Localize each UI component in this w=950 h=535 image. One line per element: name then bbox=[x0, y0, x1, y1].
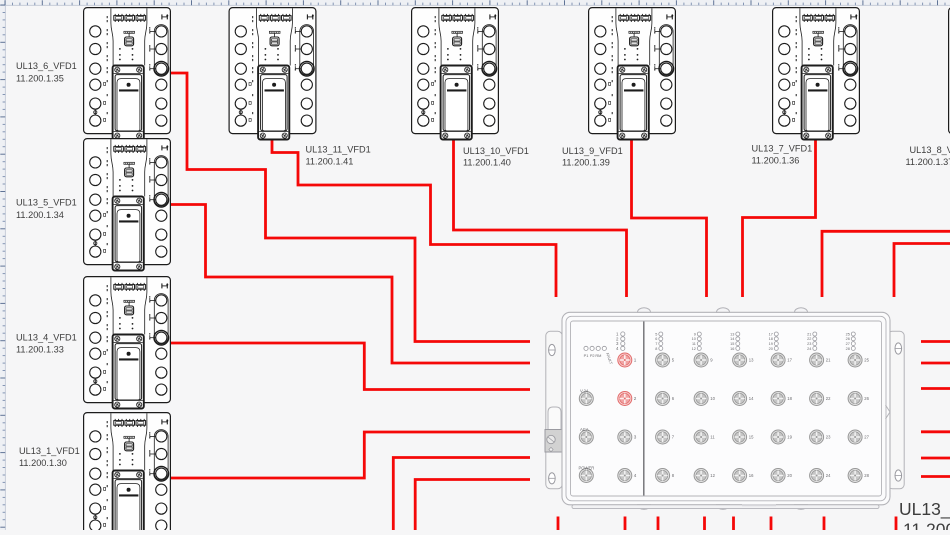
svg-text:23: 23 bbox=[826, 435, 831, 440]
svg-text:UL13_1_VFD1: UL13_1_VFD1 bbox=[19, 446, 80, 456]
svg-text:8: 8 bbox=[655, 347, 657, 351]
svg-text:22: 22 bbox=[807, 337, 811, 341]
svg-text:16: 16 bbox=[749, 473, 754, 478]
svg-text:11: 11 bbox=[692, 342, 696, 346]
svg-text:15: 15 bbox=[730, 342, 734, 346]
svg-text:22: 22 bbox=[826, 396, 831, 401]
svg-text:13: 13 bbox=[730, 332, 734, 336]
svg-text:10: 10 bbox=[710, 396, 715, 401]
svg-text:2: 2 bbox=[634, 396, 637, 401]
svg-text:RM: RM bbox=[595, 353, 601, 358]
svg-text:UL13_6_VFD1: UL13_6_VFD1 bbox=[16, 61, 77, 71]
svg-text:UL13_11_VFD1: UL13_11_VFD1 bbox=[306, 144, 371, 154]
svg-text:17: 17 bbox=[769, 332, 773, 336]
svg-text:12: 12 bbox=[710, 473, 715, 478]
svg-text:POWER: POWER bbox=[579, 466, 595, 471]
svg-text:11.200.1.30: 11.200.1.30 bbox=[19, 458, 67, 468]
svg-text:28: 28 bbox=[846, 347, 850, 351]
svg-text:24: 24 bbox=[807, 347, 811, 351]
svg-text:UL13_9_VFD1: UL13_9_VFD1 bbox=[562, 146, 623, 156]
svg-text:V.24: V.24 bbox=[580, 389, 589, 394]
svg-text:6: 6 bbox=[655, 337, 657, 341]
svg-text:21: 21 bbox=[807, 332, 811, 336]
svg-text:11.200.1.33: 11.200.1.33 bbox=[16, 345, 64, 355]
svg-text:19: 19 bbox=[787, 435, 792, 440]
svg-text:17: 17 bbox=[787, 358, 792, 363]
svg-text:UL13_5_VFD1: UL13_5_VFD1 bbox=[16, 198, 77, 208]
svg-text:9: 9 bbox=[694, 332, 696, 336]
svg-text:23: 23 bbox=[807, 342, 811, 346]
svg-text:25: 25 bbox=[864, 358, 869, 363]
svg-text:11: 11 bbox=[710, 435, 715, 440]
svg-text:11.200.1.35: 11.200.1.35 bbox=[16, 74, 64, 84]
svg-text:11.200.1.37: 11.200.1.37 bbox=[906, 157, 950, 167]
svg-text:19: 19 bbox=[769, 342, 773, 346]
svg-text:1: 1 bbox=[634, 358, 637, 363]
svg-text:20: 20 bbox=[769, 347, 773, 351]
svg-text:20: 20 bbox=[787, 473, 792, 478]
svg-text:13: 13 bbox=[749, 358, 754, 363]
svg-text:P1: P1 bbox=[584, 353, 589, 358]
svg-text:UL13_10_VFD1: UL13_10_VFD1 bbox=[463, 146, 529, 156]
svg-text:11.200.1.39: 11.200.1.39 bbox=[562, 158, 610, 168]
svg-text:14: 14 bbox=[730, 337, 734, 341]
svg-text:18: 18 bbox=[787, 396, 792, 401]
svg-text:28: 28 bbox=[864, 473, 869, 478]
svg-text:26: 26 bbox=[864, 396, 869, 401]
svg-text:14: 14 bbox=[749, 396, 754, 401]
svg-text:UL13_SW1: UL13_SW1 bbox=[899, 499, 950, 520]
svg-text:5: 5 bbox=[655, 332, 657, 336]
svg-text:3: 3 bbox=[634, 435, 637, 440]
svg-text:12: 12 bbox=[692, 347, 696, 351]
svg-text:18: 18 bbox=[769, 337, 773, 341]
svg-text:25: 25 bbox=[846, 332, 850, 336]
svg-text:P2: P2 bbox=[590, 353, 595, 358]
svg-text:27: 27 bbox=[846, 342, 850, 346]
svg-text:ACA: ACA bbox=[580, 427, 589, 432]
svg-text:21: 21 bbox=[826, 358, 831, 363]
svg-text:24: 24 bbox=[826, 473, 831, 478]
svg-text:UL13_4_VFD1: UL13_4_VFD1 bbox=[16, 333, 77, 343]
svg-text:11.200.1.40: 11.200.1.40 bbox=[463, 158, 511, 168]
svg-text:7: 7 bbox=[655, 342, 657, 346]
svg-text:11.200.1.29: 11.200.1.29 bbox=[903, 520, 950, 531]
svg-text:11.200.1.41: 11.200.1.41 bbox=[306, 156, 354, 166]
svg-text:4: 4 bbox=[634, 473, 637, 478]
svg-text:27: 27 bbox=[864, 435, 869, 440]
svg-text:16: 16 bbox=[730, 347, 734, 351]
svg-text:UL13_8_VFD1: UL13_8_VFD1 bbox=[910, 145, 950, 155]
svg-text:26: 26 bbox=[846, 337, 850, 341]
svg-text:10: 10 bbox=[692, 337, 696, 341]
svg-text:15: 15 bbox=[749, 435, 754, 440]
svg-text:11.200.1.36: 11.200.1.36 bbox=[752, 156, 800, 166]
svg-text:UL13_7_VFD1: UL13_7_VFD1 bbox=[752, 144, 813, 154]
svg-text:11.200.1.34: 11.200.1.34 bbox=[16, 210, 64, 220]
